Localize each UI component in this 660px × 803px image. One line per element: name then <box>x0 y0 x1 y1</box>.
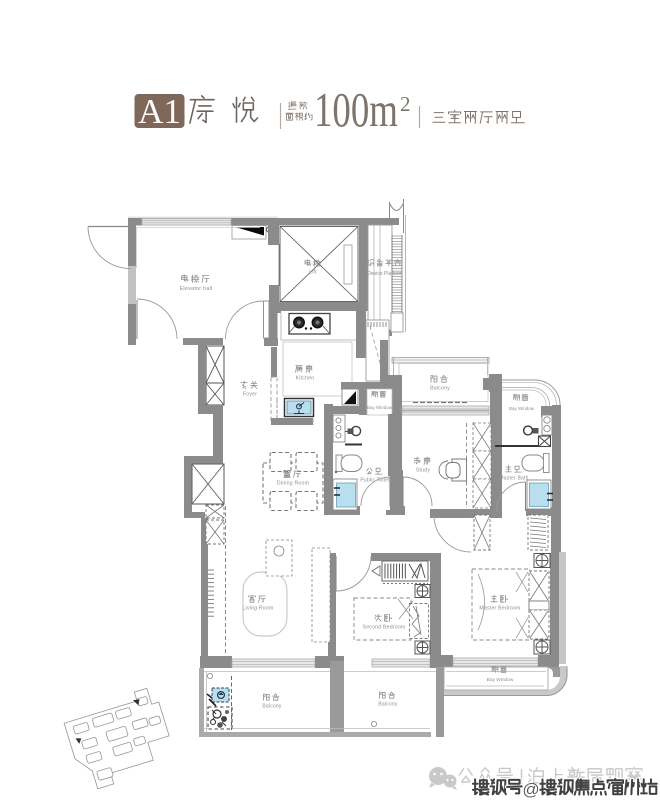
svg-text:Bay Window: Bay Window <box>509 406 535 411</box>
svg-text:A1: A1 <box>138 92 181 131</box>
svg-text:Balcony: Balcony <box>378 702 397 708</box>
svg-text:Second Bedroom: Second Bedroom <box>363 625 406 631</box>
svg-text:2: 2 <box>400 92 411 116</box>
svg-text:Master Bath: Master Bath <box>499 476 528 482</box>
svg-text:Kitchen: Kitchen <box>296 376 315 382</box>
svg-text:@: @ <box>522 780 539 799</box>
svg-text:Study: Study <box>416 468 430 474</box>
svg-text:Foyer: Foyer <box>243 392 257 398</box>
svg-text:Bay Window: Bay Window <box>367 405 393 410</box>
svg-text:Elevator hall: Elevator hall <box>180 286 213 292</box>
svg-text:Balcony: Balcony <box>262 704 281 710</box>
svg-text:Lift: Lift <box>309 270 317 276</box>
svg-text:Device Platform: Device Platform <box>367 271 402 277</box>
svg-text:Master Bedroom: Master Bedroom <box>479 606 520 612</box>
svg-text:Public Toilet: Public Toilet <box>360 478 390 484</box>
svg-text:Dining Room: Dining Room <box>277 481 309 487</box>
svg-text:Balcony: Balcony <box>430 386 450 392</box>
svg-text:100m: 100m <box>314 82 398 137</box>
svg-text:Bay Window: Bay Window <box>487 677 514 683</box>
svg-text:Living Room: Living Room <box>242 606 273 612</box>
